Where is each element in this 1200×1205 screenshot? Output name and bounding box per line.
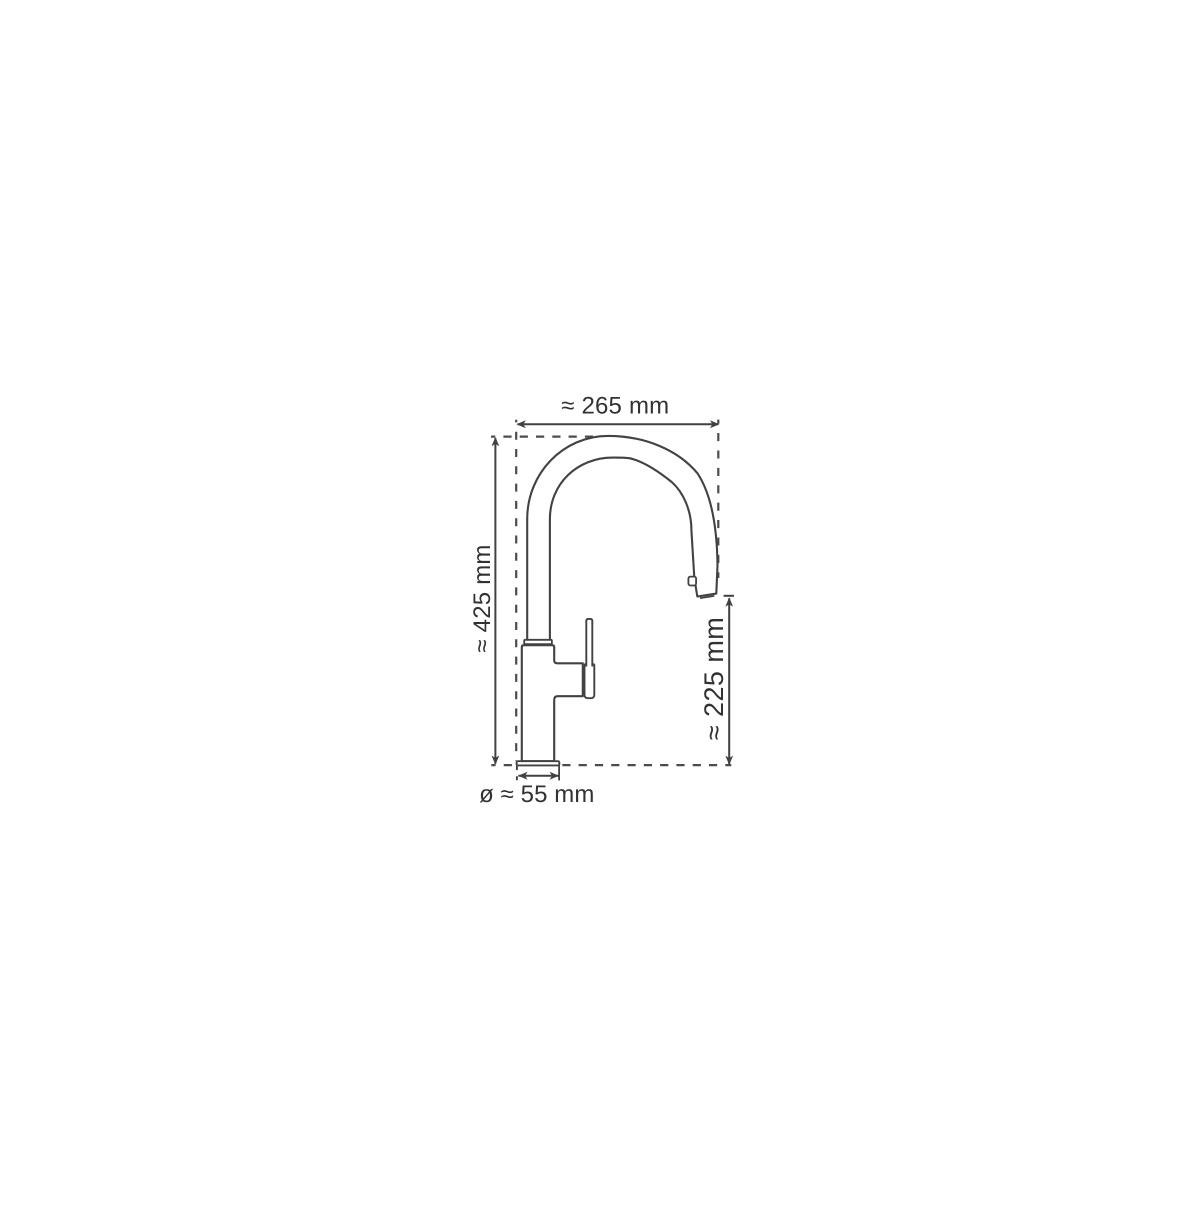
svg-text:≈ 425 mm: ≈ 425 mm: [469, 544, 496, 652]
svg-text:ø ≈ 55 mm: ø ≈ 55 mm: [479, 781, 594, 808]
svg-text:≈ 225 mm: ≈ 225 mm: [699, 617, 729, 740]
svg-text:≈ 265 mm: ≈ 265 mm: [561, 393, 669, 420]
